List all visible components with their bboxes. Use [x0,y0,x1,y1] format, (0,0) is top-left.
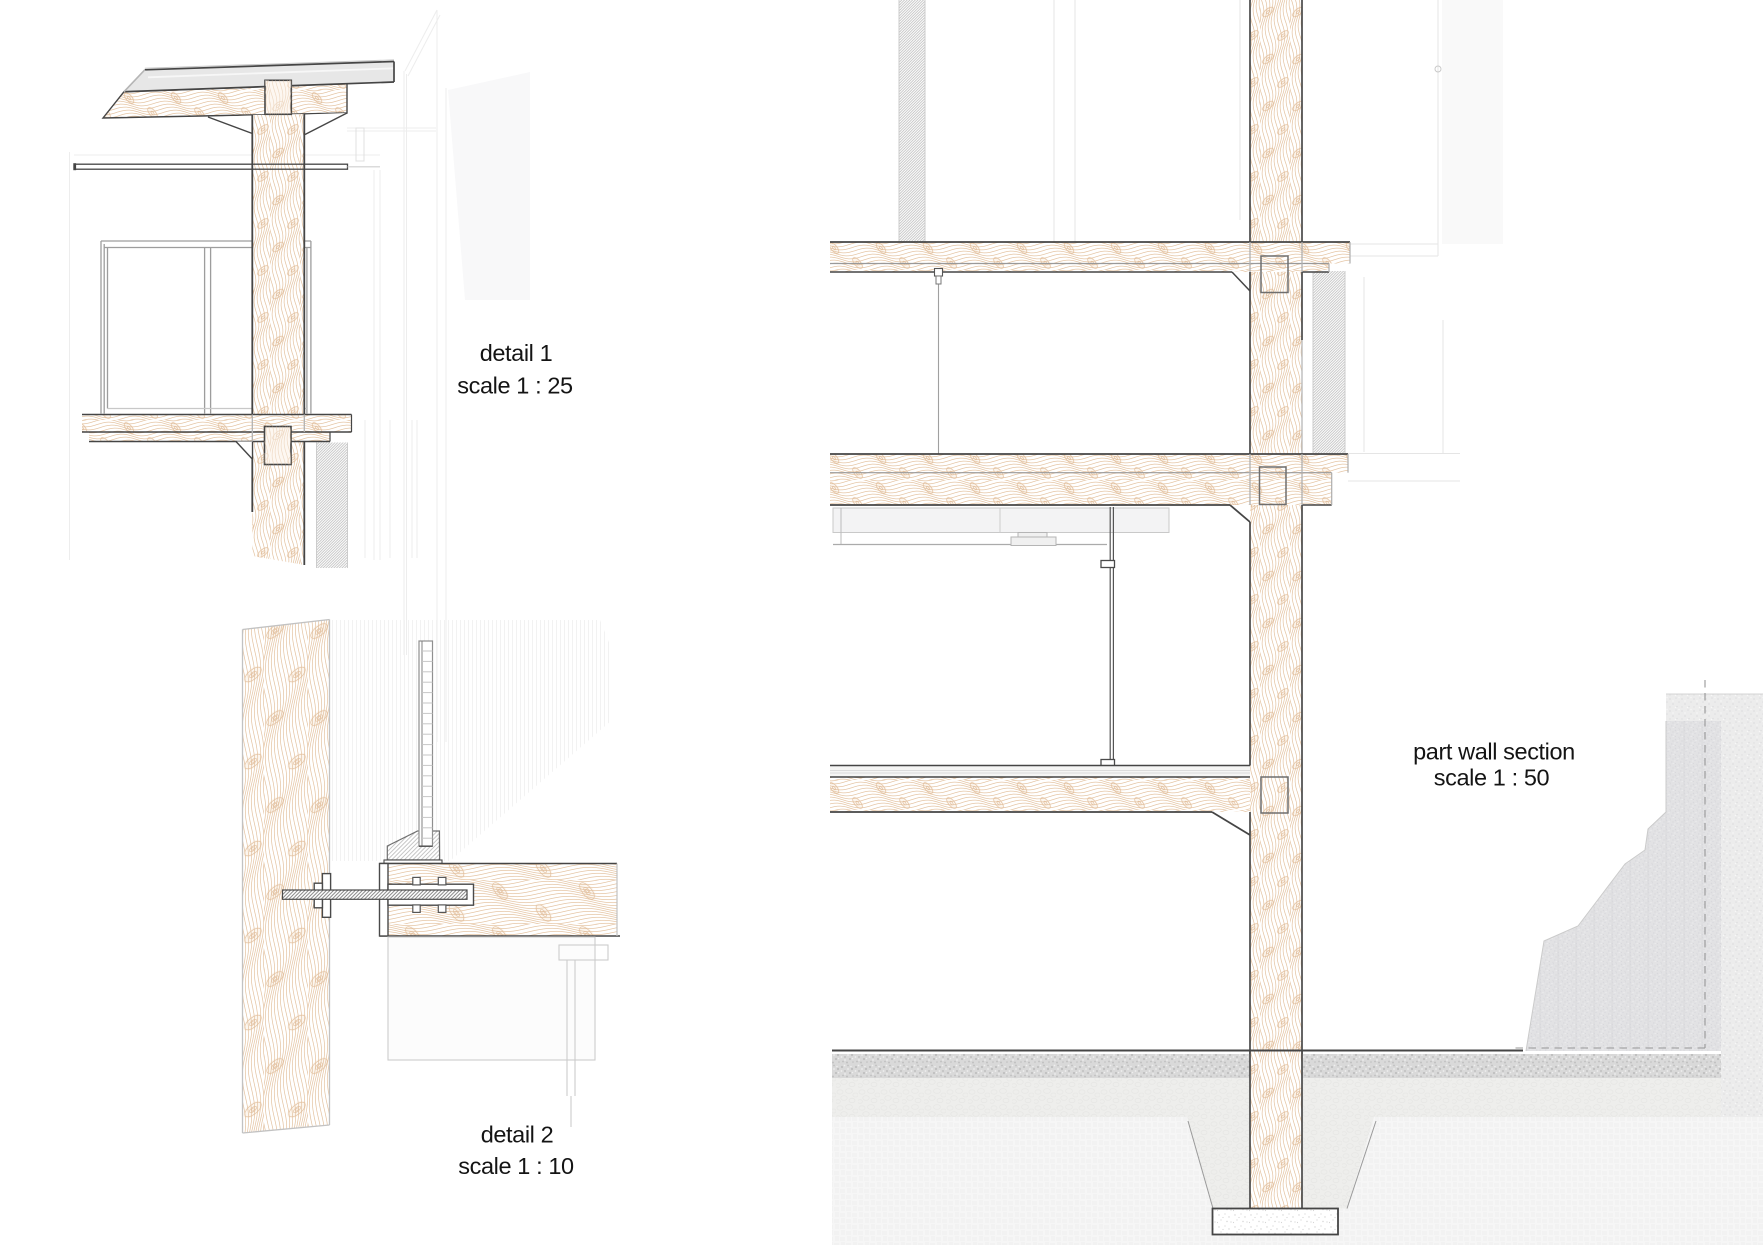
svg-text:detail 2: detail 2 [481,1122,554,1148]
svg-text:detail 1: detail 1 [480,340,553,366]
svg-text:scale 1 : 50: scale 1 : 50 [1434,765,1550,791]
svg-text:scale 1 : 10: scale 1 : 10 [458,1153,574,1179]
svg-text:scale 1 : 25: scale 1 : 25 [457,373,573,399]
svg-text:part wall section: part wall section [1413,739,1575,765]
